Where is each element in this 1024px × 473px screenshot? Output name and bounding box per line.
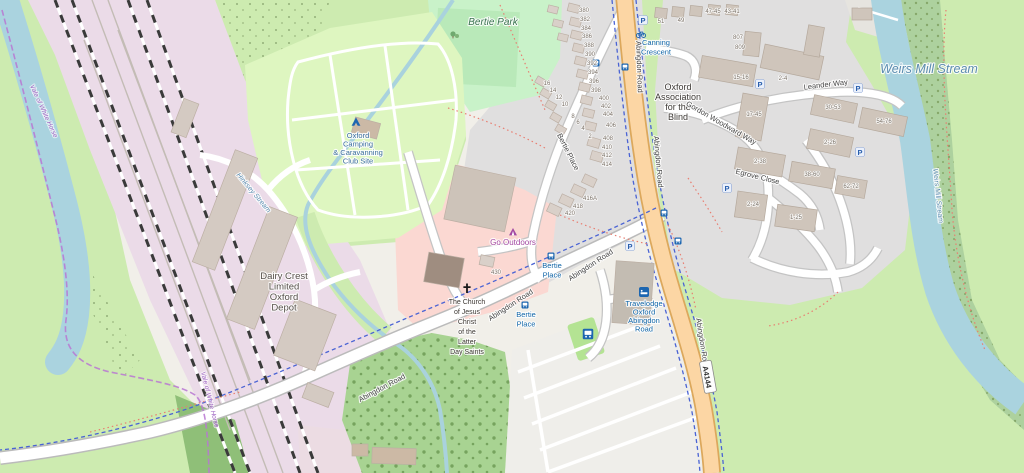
map-label: CanningCrescent: [641, 38, 672, 57]
parking-icon: P: [639, 16, 648, 25]
parking-icon: P: [856, 148, 865, 157]
map-label: 382: [580, 17, 591, 23]
map-label: 2-26: [824, 140, 837, 146]
map-canvas[interactable]: PPPPPP Bertie ParkOxfordCamping& Caravan…: [0, 0, 1024, 473]
map-label: 380: [579, 8, 590, 14]
svg-text:P: P: [757, 80, 762, 89]
bus-stop-icon: [622, 64, 629, 71]
osm-map[interactable]: PPPPPP Bertie ParkOxfordCamping& Caravan…: [0, 0, 1024, 473]
map-label: 807: [733, 35, 744, 41]
map-label: 430: [491, 270, 502, 276]
bus-big-icon: [583, 329, 594, 340]
map-label: 414: [602, 162, 613, 168]
map-label: 420: [565, 211, 576, 217]
map-label: 386: [582, 34, 593, 40]
bus-stop-icon: [675, 238, 682, 245]
map-label: 49: [678, 18, 685, 24]
parking-icon: P: [756, 80, 765, 89]
map-label: 408: [603, 136, 614, 142]
map-label: 54-76: [876, 119, 892, 125]
bus-stop-icon: [522, 302, 529, 309]
parking-icon: P: [626, 242, 635, 251]
map-label: 404: [603, 112, 614, 118]
svg-text:P: P: [857, 148, 862, 157]
map-label: 416A: [583, 196, 597, 202]
map-label: BertiePlace: [516, 310, 536, 329]
map-label: 394: [588, 70, 599, 76]
svg-text:P: P: [724, 184, 729, 193]
map-label: 396: [589, 79, 600, 85]
map-label: 406: [606, 123, 617, 129]
map-label: 390: [585, 52, 596, 58]
map-label: BertiePlace: [542, 261, 562, 280]
map-label: 400: [599, 96, 610, 102]
bed-icon: [639, 287, 649, 297]
church-building: [424, 252, 465, 288]
map-label: 2-24: [747, 202, 760, 208]
map-label: 1-25: [790, 215, 803, 221]
parking-icon: P: [854, 84, 863, 93]
svg-text:P: P: [627, 242, 632, 251]
map-label: 12: [556, 95, 563, 101]
map-label: 62-72: [843, 184, 859, 190]
map-label: 14: [550, 88, 557, 94]
map-label: 412: [602, 153, 613, 159]
bus-stop-icon: [548, 253, 555, 260]
map-label: 17-45: [746, 112, 762, 118]
map-label: 47-45: [705, 9, 721, 15]
map-label: 2-4: [779, 76, 788, 82]
map-label: 2-38: [754, 159, 767, 165]
map-label: 51: [658, 19, 665, 25]
map-label: 15-16: [733, 75, 749, 81]
map-label: 30-53: [825, 105, 841, 111]
bus-stop-icon: [661, 210, 668, 217]
map-label: 388: [584, 43, 595, 49]
map-label: 38-60: [804, 172, 820, 178]
map-label: Weirs Mill Stream: [880, 62, 978, 76]
map-label: 392: [587, 61, 598, 67]
map-label: 410: [602, 145, 613, 151]
map-label: Bertie Park: [468, 17, 518, 28]
map-label: 809: [735, 45, 746, 51]
map-label: Go Outdoors: [490, 238, 536, 247]
svg-text:P: P: [640, 16, 645, 25]
parking-icon: P: [723, 184, 732, 193]
svg-text:P: P: [855, 84, 860, 93]
map-label: 402: [601, 104, 612, 110]
map-label: 43-41: [724, 9, 740, 15]
map-label: 384: [581, 26, 592, 32]
map-label: 10: [562, 102, 569, 108]
map-label: 16: [544, 81, 551, 87]
map-label: 418: [573, 204, 584, 210]
map-label: 398: [591, 88, 602, 94]
